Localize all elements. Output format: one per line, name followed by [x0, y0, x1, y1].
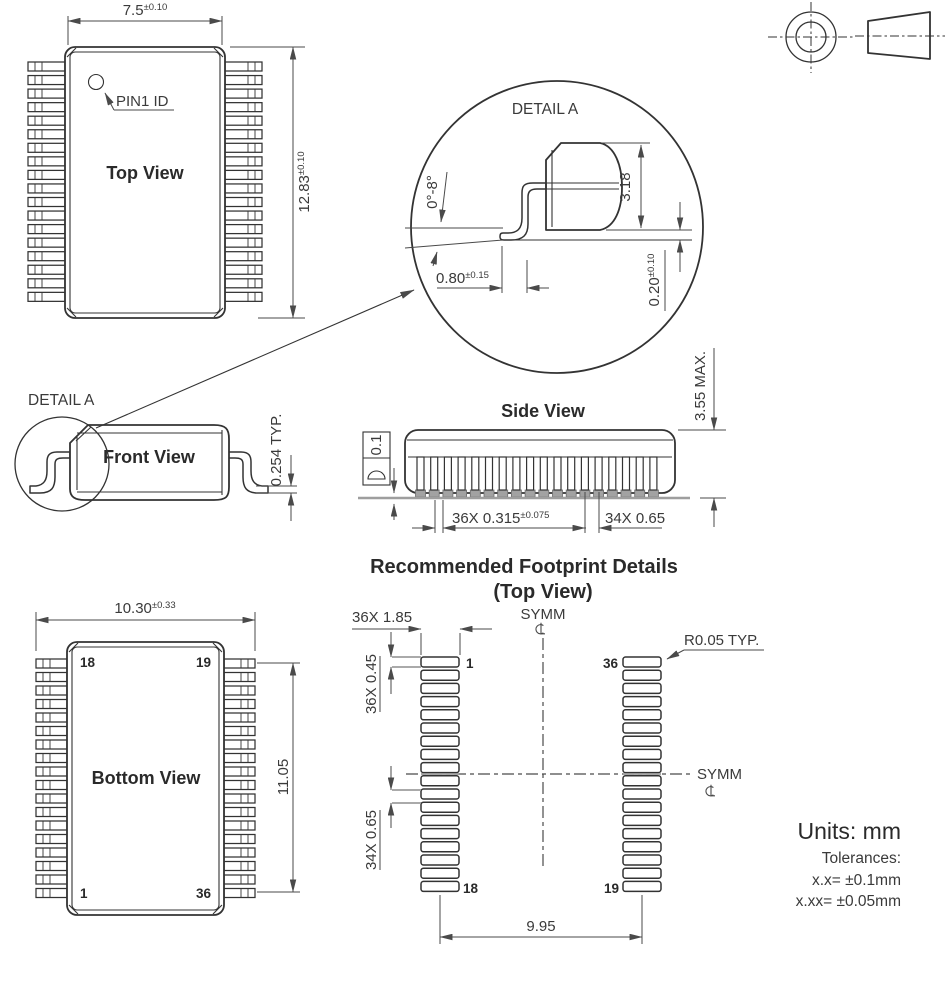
top-view-title: Top View	[106, 163, 184, 183]
pin	[225, 265, 262, 274]
pad	[421, 829, 459, 839]
pad	[421, 697, 459, 707]
detail-a-view: DETAIL A 0°-8° 3.18 0.20±0.10	[405, 81, 703, 373]
pin	[36, 713, 67, 722]
side-view: Side View 0.1 36X 0.315±0.075 34X 0.65	[358, 348, 726, 533]
svg-text:34X 0.65: 34X 0.65	[363, 810, 380, 870]
bottom-view-pins-right	[224, 659, 255, 898]
lead	[527, 457, 534, 490]
lead	[636, 457, 643, 490]
pad	[421, 710, 459, 720]
svg-text:3.18: 3.18	[617, 172, 634, 201]
pin	[28, 143, 65, 152]
pin	[28, 89, 65, 98]
lead	[650, 457, 657, 490]
pad	[421, 881, 459, 891]
pad	[623, 842, 661, 852]
pad	[421, 776, 459, 786]
lead-foot	[525, 490, 535, 497]
pad	[421, 683, 459, 693]
pin	[225, 292, 262, 301]
pin	[225, 116, 262, 125]
svg-text:34X 0.65: 34X 0.65	[605, 510, 665, 527]
lead	[540, 457, 547, 490]
projection-circle-icon	[768, 2, 854, 73]
pin	[36, 673, 67, 682]
lead-foot	[429, 490, 439, 497]
pin-number-36: 36	[196, 886, 212, 901]
lead	[499, 457, 506, 490]
svg-text:9.95: 9.95	[526, 918, 555, 935]
pad	[623, 815, 661, 825]
pad	[623, 868, 661, 878]
dim-standoff: 0.20±0.10	[646, 202, 680, 311]
pin	[28, 292, 65, 301]
lead	[431, 457, 438, 490]
dim-foot-length: 0.80±0.15	[436, 246, 549, 293]
pin	[28, 76, 65, 85]
pin	[224, 686, 255, 695]
dim-top-view-height: 12.83±0.10	[230, 47, 313, 318]
pin	[28, 103, 65, 112]
pin	[225, 279, 262, 288]
footprint-view: Recommended Footprint Details (Top View)…	[352, 556, 764, 944]
pin	[224, 862, 255, 871]
svg-text:0.254 TYP.: 0.254 TYP.	[268, 414, 285, 487]
svg-text:7.5±0.10: 7.5±0.10	[123, 2, 168, 19]
pin-number-19: 19	[196, 655, 211, 670]
detail-lead	[500, 183, 546, 240]
dim-max-height: 3.55 MAX.	[678, 348, 726, 527]
pin	[36, 767, 67, 776]
lead-foot	[566, 490, 576, 497]
lead	[458, 457, 465, 490]
pin	[224, 713, 255, 722]
tolerance-xx: x.xx= ±0.05mm	[796, 893, 901, 910]
pad	[421, 723, 459, 733]
pin	[224, 673, 255, 682]
svg-text:0.20±0.10: 0.20±0.10	[646, 254, 663, 307]
pin	[28, 62, 65, 71]
dim-pad-length: 36X 1.85	[352, 609, 492, 655]
pad	[623, 881, 661, 891]
pin	[225, 184, 262, 193]
pin	[224, 821, 255, 830]
pin	[224, 754, 255, 763]
lead-foot	[539, 490, 549, 497]
lead-foot	[470, 490, 480, 497]
pin	[224, 835, 255, 844]
top-view: PIN1 ID Top View 7.5±0.10 12.83±0.10	[28, 2, 313, 318]
pin	[225, 225, 262, 234]
pad	[421, 868, 459, 878]
lead-foot	[621, 490, 631, 497]
pad	[623, 789, 661, 799]
lead-foot	[511, 490, 521, 497]
lead	[417, 457, 424, 490]
dim-pad-pitch: 34X 0.65	[363, 766, 421, 870]
lead	[595, 457, 602, 490]
dim-top-view-width: 7.5±0.10	[68, 2, 222, 45]
units-label: Units: mm	[798, 818, 902, 844]
pin	[225, 103, 262, 112]
pin	[224, 740, 255, 749]
pin	[225, 76, 262, 85]
pin	[36, 808, 67, 817]
dim-pad-span: 9.95	[440, 895, 642, 944]
dim-lead-width: 36X 0.315±0.075	[412, 500, 586, 533]
front-view-lead-right	[228, 452, 268, 493]
footprint-pin-19: 19	[604, 881, 619, 896]
pin-number-1: 1	[80, 886, 88, 901]
pin	[224, 794, 255, 803]
pad	[623, 683, 661, 693]
pin	[28, 170, 65, 179]
pad	[421, 749, 459, 759]
pin	[36, 794, 67, 803]
lead	[623, 457, 630, 490]
pin	[225, 170, 262, 179]
pin	[224, 889, 255, 898]
lead	[513, 457, 520, 490]
front-view-detail-label: DETAIL A	[28, 392, 95, 409]
lead-foot	[607, 490, 617, 497]
pad	[421, 842, 459, 852]
lead	[444, 457, 451, 490]
lead-foot	[648, 490, 658, 497]
svg-text:12.83±0.10: 12.83±0.10	[296, 151, 313, 212]
pad	[421, 736, 459, 746]
pad	[623, 802, 661, 812]
pad	[623, 697, 661, 707]
svg-text:3.55 MAX.: 3.55 MAX.	[692, 351, 709, 421]
bottom-view-title: Bottom View	[92, 768, 202, 788]
top-view-pins-left	[28, 62, 65, 301]
pin	[224, 727, 255, 736]
pad	[623, 670, 661, 680]
pin	[28, 238, 65, 247]
pad	[623, 749, 661, 759]
pin	[36, 740, 67, 749]
pad	[623, 855, 661, 865]
flatness-control-frame: 0.1	[363, 432, 390, 485]
pin1-id-label: PIN1 ID	[116, 93, 169, 110]
pin	[28, 116, 65, 125]
pin	[36, 875, 67, 884]
pin	[225, 211, 262, 220]
pad	[421, 763, 459, 773]
pin	[36, 686, 67, 695]
pin	[225, 89, 262, 98]
pin	[36, 821, 67, 830]
pin	[225, 238, 262, 247]
svg-text:36X 0.45: 36X 0.45	[363, 654, 380, 714]
notes: Units: mm Tolerances: x.x= ±0.1mm x.xx= …	[796, 818, 901, 910]
pin	[225, 143, 262, 152]
pin	[28, 130, 65, 139]
pin	[224, 781, 255, 790]
symm-label-top: SYMM	[521, 606, 566, 623]
bottom-view-pins-left	[36, 659, 67, 898]
pin	[224, 875, 255, 884]
lead	[486, 457, 493, 490]
pin	[36, 659, 67, 668]
pin	[36, 781, 67, 790]
footprint-title: Recommended Footprint Details	[370, 556, 678, 578]
lead	[609, 457, 616, 490]
pad	[623, 829, 661, 839]
pin	[225, 157, 262, 166]
detail-a-circle	[411, 81, 703, 373]
pin	[225, 62, 262, 71]
footprint-subtitle: (Top View)	[493, 581, 592, 603]
pin	[28, 198, 65, 207]
lead	[581, 457, 588, 490]
footprint-pin-36: 36	[603, 656, 619, 671]
pin	[224, 848, 255, 857]
dim-pad-width: 36X 0.45	[363, 632, 421, 714]
pin	[36, 727, 67, 736]
pad	[623, 776, 661, 786]
svg-text:36X 1.85: 36X 1.85	[352, 609, 412, 626]
pin	[36, 848, 67, 857]
side-view-title: Side View	[501, 401, 586, 421]
pin	[36, 700, 67, 709]
svg-text:0.80±0.15: 0.80±0.15	[436, 270, 489, 287]
pin	[28, 225, 65, 234]
svg-text:11.05: 11.05	[275, 759, 292, 795]
lead-foot	[635, 490, 645, 497]
tolerance-x: x.x= ±0.1mm	[812, 872, 901, 889]
front-view-lead-left	[30, 452, 70, 493]
lead-foot	[457, 490, 467, 497]
pin	[224, 767, 255, 776]
pin	[224, 659, 255, 668]
pin	[36, 862, 67, 871]
lead-foot	[443, 490, 453, 497]
centerline-icon	[706, 785, 715, 796]
pin	[28, 211, 65, 220]
pad	[421, 855, 459, 865]
svg-text:0°-8°: 0°-8°	[424, 175, 441, 209]
lead	[472, 457, 479, 490]
pad	[623, 723, 661, 733]
pad	[421, 802, 459, 812]
projection-symbols	[768, 2, 945, 73]
detail-a-title: DETAIL A	[512, 101, 579, 118]
front-view-title: Front View	[103, 447, 196, 467]
pin-number-18: 18	[80, 655, 96, 670]
pad	[421, 657, 459, 667]
lead	[554, 457, 561, 490]
pin	[36, 889, 67, 898]
pin	[28, 252, 65, 261]
bottom-view: 18 19 1 36 Bottom View 10.30±0.33 11.05	[36, 600, 300, 915]
dim-bottom-view-pin-span: 11.05	[257, 663, 300, 892]
svg-text:R0.05 TYP.: R0.05 TYP.	[684, 632, 759, 649]
lead-foot	[498, 490, 508, 497]
pin	[224, 700, 255, 709]
pad	[623, 657, 661, 667]
pin	[28, 265, 65, 274]
pin	[225, 198, 262, 207]
pin	[225, 130, 262, 139]
footprint-pin-1: 1	[466, 656, 474, 671]
pin	[28, 157, 65, 166]
dim-corner-radius: R0.05 TYP.	[667, 632, 764, 659]
package-drawing: PIN1 ID Top View 7.5±0.10 12.83±0.10 DET…	[0, 0, 952, 983]
projection-cone-icon	[855, 12, 945, 59]
profile-symbol-icon	[368, 471, 385, 479]
pin	[225, 252, 262, 261]
centerline-icon	[536, 623, 545, 634]
footprint-pin-18: 18	[463, 881, 479, 896]
pin	[28, 184, 65, 193]
pin	[28, 279, 65, 288]
lead-foot	[484, 490, 494, 497]
pad	[421, 815, 459, 825]
pin	[36, 835, 67, 844]
pad	[623, 736, 661, 746]
pin	[36, 754, 67, 763]
detail-body	[546, 143, 622, 230]
svg-text:10.30±0.33: 10.30±0.33	[114, 600, 175, 617]
front-view: DETAIL A Front View 0.254 TYP.	[15, 290, 414, 521]
svg-text:36X 0.315±0.075: 36X 0.315±0.075	[452, 510, 549, 527]
pad	[421, 789, 459, 799]
pin	[224, 808, 255, 817]
symm-label-right: SYMM	[697, 766, 742, 783]
pad	[623, 710, 661, 720]
lead-foot	[553, 490, 563, 497]
lead-foot	[416, 490, 426, 497]
dim-lead-angle: 0°-8°	[424, 172, 447, 266]
pin1-id-callout: PIN1 ID	[105, 93, 174, 110]
drawing-canvas: PIN1 ID Top View 7.5±0.10 12.83±0.10 DET…	[0, 0, 952, 983]
pad	[421, 670, 459, 680]
pad	[623, 763, 661, 773]
tolerances-label: Tolerances:	[822, 850, 901, 867]
lead	[568, 457, 575, 490]
top-view-pins-right	[225, 62, 262, 301]
dim-lead-thickness: 0.254 TYP.	[256, 414, 297, 521]
flatness-value: 0.1	[368, 435, 385, 456]
